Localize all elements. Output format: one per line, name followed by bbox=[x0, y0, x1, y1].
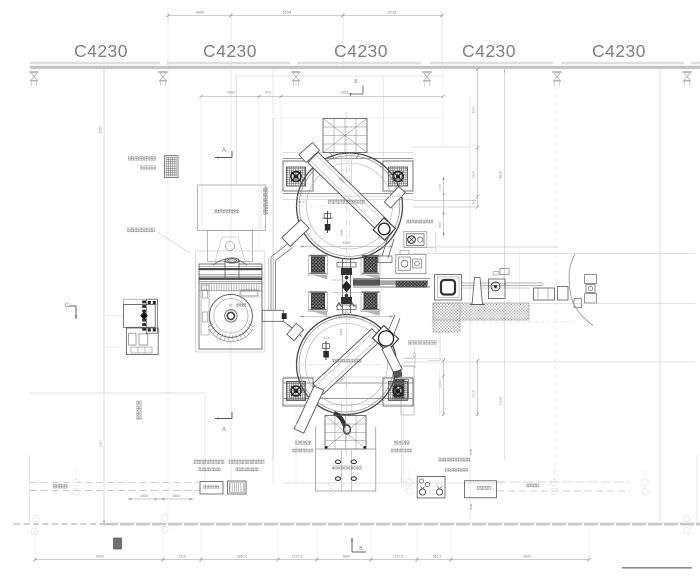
svg-text:C: C bbox=[65, 302, 70, 309]
svg-text:1500: 1500 bbox=[99, 126, 103, 133]
svg-text:1500: 1500 bbox=[469, 503, 473, 510]
svg-text:5298: 5298 bbox=[283, 11, 291, 15]
svg-text:1310: 1310 bbox=[178, 555, 186, 559]
svg-text:2983: 2983 bbox=[227, 91, 235, 95]
svg-text:1727.5: 1727.5 bbox=[292, 555, 302, 559]
svg-text:6T: 6T bbox=[229, 304, 233, 308]
svg-text:C4230: C4230 bbox=[203, 41, 257, 61]
svg-text:2800: 2800 bbox=[342, 555, 350, 559]
svg-text:C4230: C4230 bbox=[334, 41, 388, 61]
svg-text:B: B bbox=[359, 546, 363, 552]
svg-text:1727.5: 1727.5 bbox=[393, 555, 403, 559]
svg-text:21.3°: 21.3° bbox=[298, 200, 306, 204]
svg-text:1500: 1500 bbox=[140, 494, 148, 498]
svg-text:2218: 2218 bbox=[472, 171, 476, 178]
svg-text:C4230: C4230 bbox=[592, 41, 646, 61]
svg-text:1170: 1170 bbox=[438, 380, 442, 387]
svg-text:21.3°: 21.3° bbox=[323, 336, 331, 340]
svg-text:2408: 2408 bbox=[340, 229, 344, 236]
svg-text:2400: 2400 bbox=[342, 311, 350, 315]
svg-text:2408: 2408 bbox=[339, 328, 343, 335]
svg-text:300: 300 bbox=[438, 222, 442, 227]
svg-text:2218: 2218 bbox=[472, 390, 476, 397]
svg-text:9816: 9816 bbox=[499, 171, 503, 179]
svg-text:B: B bbox=[354, 79, 358, 85]
svg-text:11234: 11234 bbox=[499, 397, 503, 406]
svg-text:7250: 7250 bbox=[98, 440, 102, 447]
svg-text:1170: 1170 bbox=[438, 184, 442, 191]
svg-text:C4230: C4230 bbox=[74, 41, 128, 61]
svg-text:6000: 6000 bbox=[523, 555, 531, 559]
svg-text:3718: 3718 bbox=[388, 11, 396, 15]
svg-text:3000: 3000 bbox=[472, 106, 476, 113]
svg-text:562.5: 562.5 bbox=[433, 555, 442, 559]
svg-text:1800: 1800 bbox=[172, 494, 180, 498]
svg-text:473: 473 bbox=[265, 91, 271, 95]
svg-text:C4230: C4230 bbox=[462, 41, 516, 61]
svg-text:4283: 4283 bbox=[341, 91, 349, 95]
svg-text:3000: 3000 bbox=[196, 11, 204, 15]
svg-text:3652.5: 3652.5 bbox=[237, 555, 247, 559]
svg-text:6000: 6000 bbox=[96, 555, 104, 559]
svg-text:300: 300 bbox=[472, 199, 476, 204]
svg-text:1500: 1500 bbox=[469, 448, 473, 455]
svg-text:2400: 2400 bbox=[342, 241, 350, 245]
